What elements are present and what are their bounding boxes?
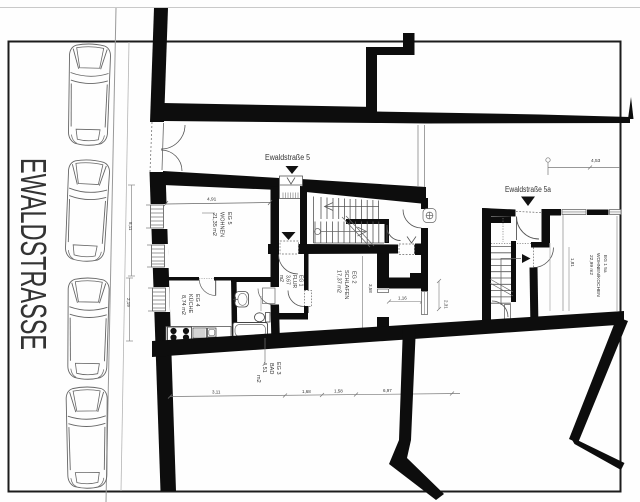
svg-text:Ewaldstraße 5a: Ewaldstraße 5a — [505, 185, 551, 194]
svg-text:3,58: 3,58 — [368, 284, 373, 293]
svg-text:8,11: 8,11 — [128, 222, 133, 231]
svg-text:3,11: 3,11 — [212, 390, 221, 395]
svg-text:1,68: 1,68 — [302, 389, 311, 394]
svg-text:4,51: 4,51 — [261, 362, 267, 373]
svg-text:EWALDSTRASSE: EWALDSTRASSE — [13, 158, 54, 350]
svg-text:1,58: 1,58 — [334, 389, 343, 394]
svg-text:2,19: 2,19 — [126, 298, 131, 307]
svg-text:FLUR: FLUR — [291, 275, 297, 288]
svg-text:2,31: 2,31 — [444, 300, 449, 309]
svg-text:1,81: 1,81 — [570, 258, 575, 267]
svg-text:SCHLAFEN: SCHLAFEN — [343, 270, 349, 299]
svg-text:EG 4: EG 4 — [194, 294, 200, 307]
svg-text:m2: m2 — [255, 375, 261, 383]
svg-text:6,97: 6,97 — [383, 388, 392, 393]
svg-text:EG 5: EG 5 — [226, 212, 232, 225]
svg-text:22,99 m2: 22,99 m2 — [588, 255, 594, 275]
svg-text:4,53: 4,53 — [591, 158, 601, 164]
svg-text:WOHNEN: WOHNEN — [219, 212, 225, 237]
svg-text:3,67: 3,67 — [285, 275, 291, 285]
svg-text:EG 1 5a: EG 1 5a — [602, 255, 608, 273]
svg-text:21,35 m2: 21,35 m2 — [211, 213, 217, 236]
svg-text:Ewaldstraße 5: Ewaldstraße 5 — [265, 153, 310, 162]
svg-text:EG 2: EG 2 — [351, 271, 357, 284]
svg-text:BAD: BAD — [268, 363, 274, 374]
svg-text:17,37 m2: 17,37 m2 — [336, 270, 342, 293]
svg-text:m2: m2 — [278, 275, 284, 282]
svg-text:KÜCHE: KÜCHE — [187, 294, 194, 314]
svg-text:8,74 m2: 8,74 m2 — [180, 295, 186, 315]
svg-text:4,91: 4,91 — [207, 197, 217, 203]
svg-text:1,16: 1,16 — [398, 296, 407, 301]
svg-text:EG 1: EG 1 — [298, 275, 304, 287]
svg-text:WOHNEN/KOCHEN: WOHNEN/KOCHEN — [595, 253, 601, 297]
svg-text:EG 3: EG 3 — [275, 362, 281, 375]
